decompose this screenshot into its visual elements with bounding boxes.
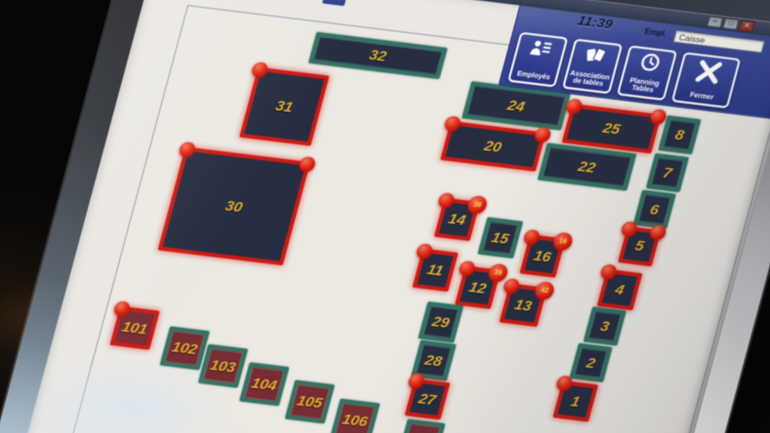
table-106[interactable]: 106 — [330, 399, 380, 433]
table-number: 1 — [569, 392, 582, 410]
table-number: 30 — [224, 197, 245, 216]
close-x-icon — [691, 59, 724, 90]
table-number: 101 — [120, 318, 149, 338]
table-number: 13 — [513, 296, 534, 315]
table-3[interactable]: 3 — [583, 307, 626, 346]
toolbar-button-label: Association de tables — [566, 70, 612, 90]
table-number: 32 — [367, 46, 388, 65]
table-number: 27 — [417, 390, 438, 409]
presence-dot — [599, 264, 618, 280]
touchscreen-monitor: – □ ✕ 3231302425202287654321143815161611… — [0, 0, 770, 433]
table-6[interactable]: 6 — [633, 190, 676, 229]
presence-dot — [458, 260, 477, 276]
table-number: 20 — [483, 137, 504, 156]
link-tables-icon — [582, 45, 608, 70]
presence-dot — [437, 192, 456, 208]
table-101[interactable]: 101 — [110, 306, 160, 350]
table-number: 2 — [585, 354, 598, 372]
toolbar-button-label: Fermer — [689, 92, 715, 102]
fermer-button[interactable]: Fermer — [671, 52, 741, 109]
presence-dot — [443, 115, 462, 131]
presence-dot — [533, 126, 552, 142]
toolbar-button-label: Planning Tables — [621, 76, 667, 96]
table-12[interactable]: 1239 — [455, 266, 501, 309]
table-number: 12 — [467, 278, 488, 297]
toolbar-partial-button[interactable] — [321, 0, 351, 7]
planning-tables-button[interactable]: Planning Tables — [617, 45, 678, 101]
table-number: 106 — [340, 411, 369, 431]
table-27[interactable]: 27 — [405, 378, 451, 419]
order-badge: 42 — [533, 281, 556, 301]
toolbar-button-label: Employés — [516, 71, 551, 83]
table-105[interactable]: 105 — [285, 380, 335, 424]
table-7[interactable]: 7 — [646, 153, 689, 192]
presence-dot — [113, 301, 132, 317]
minimize-button[interactable]: – — [707, 16, 724, 28]
table-number: 105 — [295, 392, 324, 412]
table-104[interactable]: 104 — [239, 362, 289, 406]
table-number: 22 — [576, 158, 597, 177]
table-11[interactable]: 11 — [412, 248, 458, 291]
table-number: 24 — [506, 96, 527, 115]
table-1[interactable]: 1 — [553, 380, 599, 421]
table-number: 6 — [648, 201, 661, 219]
clock-icon — [637, 52, 662, 78]
table-32[interactable]: 32 — [308, 32, 447, 79]
association-tables-button[interactable]: Association de tables — [562, 38, 623, 94]
table-number: 7 — [661, 164, 674, 182]
table-number: 14 — [447, 210, 468, 229]
table-number: 5 — [633, 238, 646, 256]
table-number: 16 — [532, 247, 553, 266]
table-107[interactable]: 107 — [398, 419, 446, 433]
table-number: 3 — [598, 317, 611, 335]
table-15[interactable]: 15 — [477, 217, 523, 258]
table-4[interactable]: 4 — [597, 269, 643, 310]
presence-dot — [555, 375, 574, 391]
table-number: 103 — [208, 356, 237, 376]
table-31[interactable]: 31 — [239, 67, 329, 146]
presence-dot — [415, 243, 434, 259]
employee-label: Empl. — [644, 27, 668, 38]
presence-dot — [407, 373, 426, 389]
table-number: 31 — [274, 97, 295, 116]
maximize-button[interactable]: □ — [723, 18, 740, 30]
presence-dot — [250, 62, 269, 78]
table-number: 8 — [673, 126, 686, 144]
table-number: 4 — [613, 281, 626, 299]
table-5[interactable]: 5 — [618, 226, 661, 266]
employes-button[interactable]: Employés — [507, 32, 568, 88]
table-20[interactable]: 20 — [440, 121, 546, 172]
table-number: 104 — [250, 374, 279, 394]
table-30[interactable]: 30 — [158, 147, 311, 266]
presence-dot — [620, 221, 639, 237]
table-number: 11 — [425, 261, 445, 279]
presence-dot — [522, 229, 541, 245]
table-number: 28 — [423, 351, 444, 370]
table-14[interactable]: 1438 — [434, 198, 480, 241]
screen: – □ ✕ 3231302425202287654321143815161611… — [12, 0, 770, 433]
close-button[interactable]: ✕ — [738, 20, 755, 32]
table-number: 25 — [601, 119, 622, 138]
table-number: 102 — [170, 338, 199, 358]
order-badge: 38 — [466, 195, 489, 215]
table-2[interactable]: 2 — [569, 343, 612, 382]
presence-dot — [298, 156, 317, 172]
presence-dot — [502, 278, 521, 294]
presence-dot — [178, 141, 197, 157]
table-29[interactable]: 29 — [418, 301, 464, 342]
table-16[interactable]: 1616 — [519, 234, 565, 277]
order-badge: 16 — [552, 232, 575, 252]
staff-icon — [527, 38, 553, 63]
table-13[interactable]: 1342 — [499, 283, 547, 327]
table-103[interactable]: 103 — [198, 344, 248, 388]
table-number: 29 — [430, 313, 451, 332]
table-8[interactable]: 8 — [658, 115, 701, 154]
photo-background: – □ ✕ 3231302425202287654321143815161611… — [0, 0, 770, 433]
table-number: 15 — [490, 229, 511, 248]
